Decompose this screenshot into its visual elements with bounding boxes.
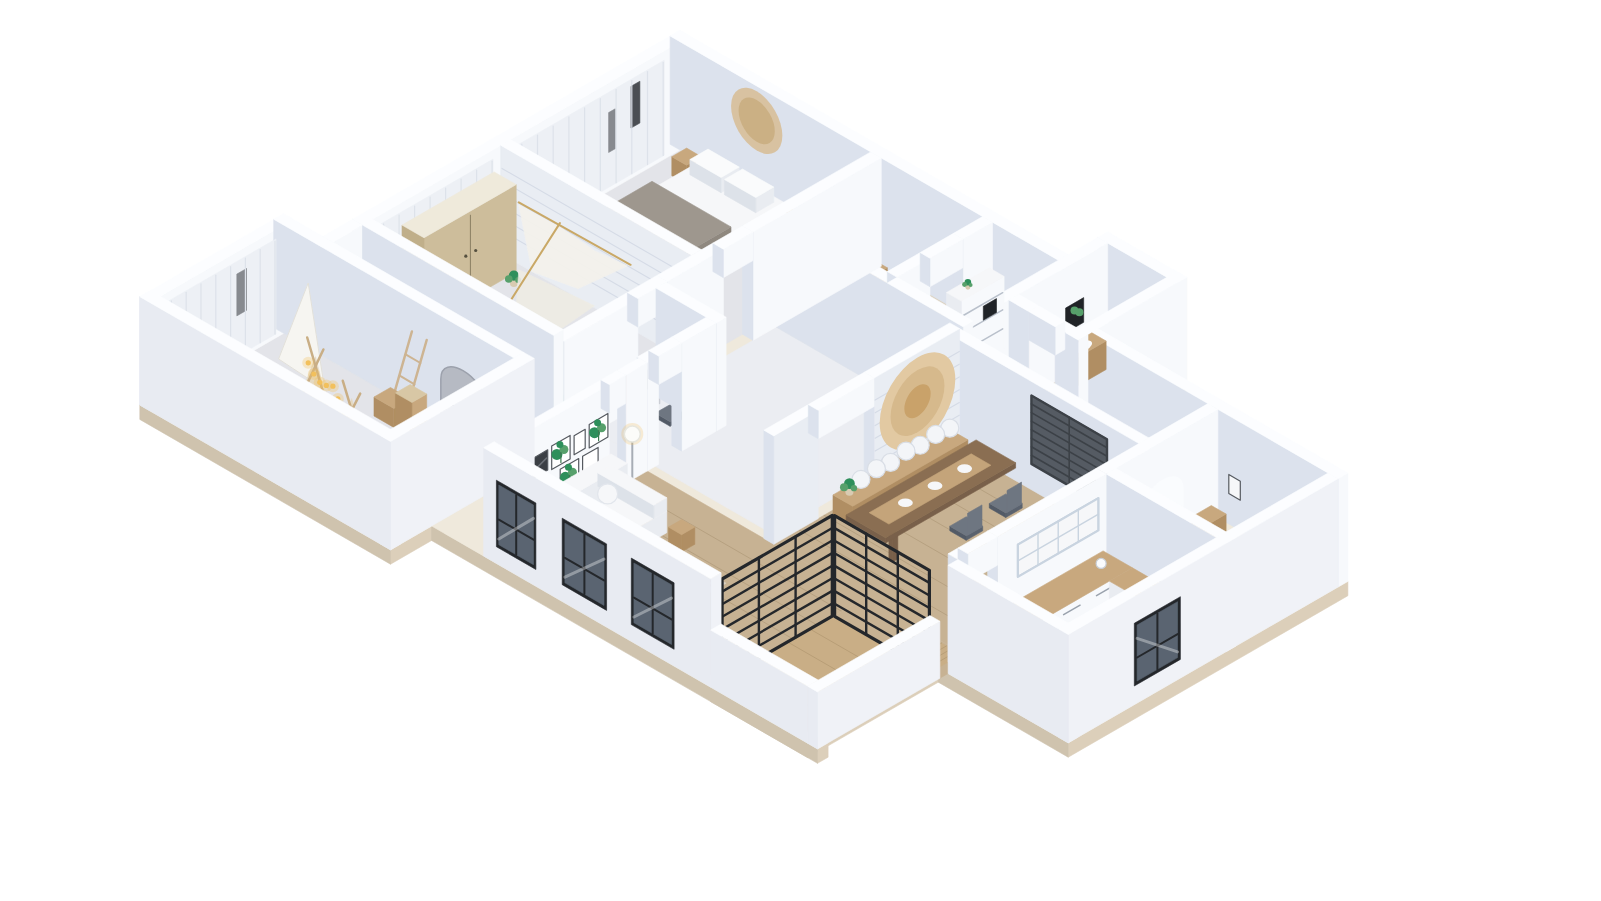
living-nw-wall-se	[626, 363, 647, 484]
string-lights	[306, 360, 311, 365]
kettle	[1096, 558, 1106, 568]
facade-se-kids-wing-sw	[380, 435, 391, 549]
sofa-cushions	[598, 484, 618, 504]
monstera-leaf	[556, 441, 563, 448]
plant-leaves	[969, 283, 973, 287]
bench-pillows	[897, 442, 915, 460]
plant-leaves	[505, 275, 513, 283]
corridor-opening-lintel-sw	[601, 380, 609, 413]
plant-leaves	[851, 485, 857, 491]
wardrobe-handles	[474, 249, 477, 252]
bench-pillows	[867, 460, 885, 478]
office-north-wall-se	[716, 317, 726, 431]
floor-plan-canvas	[0, 0, 1601, 901]
office-east-wall-se	[682, 323, 717, 451]
facade-se-right-wing-sw	[1058, 629, 1068, 743]
plant-leaves	[962, 282, 967, 287]
brick-wall-sw	[764, 430, 774, 544]
plant-leaves	[840, 483, 848, 491]
string-lights	[311, 371, 316, 376]
string-lights	[330, 384, 335, 389]
balcony-parapet-se-sw	[808, 686, 818, 749]
wardrobe-handles	[464, 255, 467, 258]
window-gap-dark	[609, 109, 616, 153]
bench-pillows	[927, 425, 945, 443]
facade-ne-right-wing-se	[1338, 473, 1348, 587]
monstera-leaf	[565, 464, 572, 471]
monstera-leaf	[594, 419, 601, 426]
isometric-floor-plan-render	[0, 0, 1601, 901]
lamp-shade	[624, 426, 640, 442]
plant-leaves	[1075, 308, 1083, 316]
